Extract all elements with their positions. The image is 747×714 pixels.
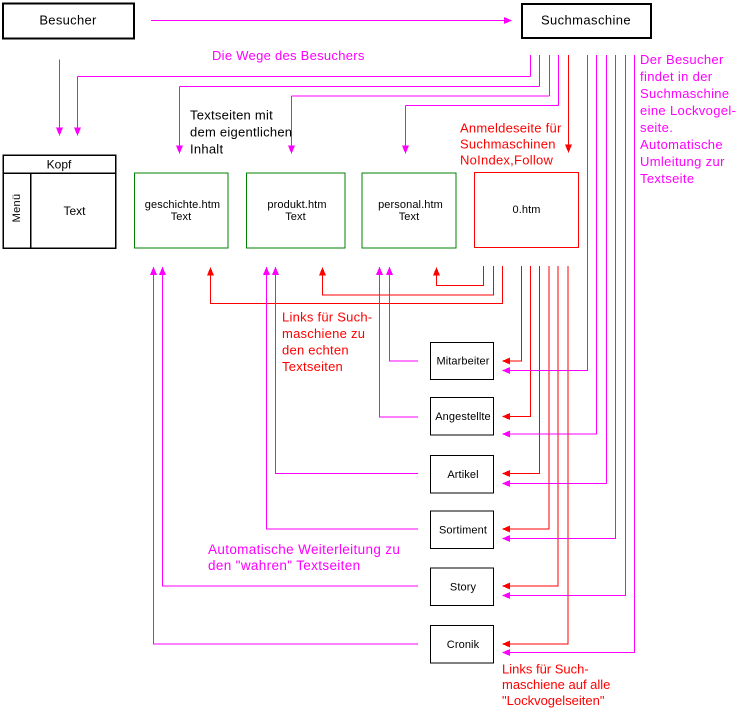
svg-text:findet in der: findet in der <box>640 69 713 84</box>
svg-text:Story: Story <box>450 582 477 594</box>
svg-text:Textseiten: Textseiten <box>282 359 343 374</box>
svg-text:Text: Text <box>63 204 86 218</box>
svg-text:Kopf: Kopf <box>47 158 72 172</box>
svg-text:Links für Such-: Links für Such- <box>502 662 589 677</box>
svg-text:NoIndex,Follow: NoIndex,Follow <box>460 153 553 168</box>
svg-text:Artikel: Artikel <box>447 469 478 481</box>
svg-text:seite.: seite. <box>640 120 673 135</box>
svg-text:Textseite: Textseite <box>640 171 694 186</box>
svg-text:Angestellte: Angestellte <box>435 411 491 423</box>
svg-text:Text: Text <box>399 211 420 223</box>
svg-text:Inhalt: Inhalt <box>190 142 223 157</box>
svg-text:"Lockvogelseiten": "Lockvogelseiten" <box>502 693 605 708</box>
svg-text:Die Wege des Besuchers: Die Wege des Besuchers <box>212 48 365 63</box>
svg-text:eine Lockvogel-: eine Lockvogel- <box>640 103 736 118</box>
svg-text:maschiene auf alle: maschiene auf alle <box>502 677 610 692</box>
svg-text:Menü: Menü <box>11 194 23 223</box>
svg-text:Links für Such-: Links für Such- <box>282 310 372 325</box>
svg-text:den echten: den echten <box>282 343 349 358</box>
svg-text:personal.htm: personal.htm <box>378 199 443 211</box>
svg-text:Textseiten mit: Textseiten mit <box>190 108 273 123</box>
svg-text:0.htm: 0.htm <box>512 204 540 216</box>
svg-text:Suchmaschine: Suchmaschine <box>541 13 631 28</box>
svg-text:Text: Text <box>285 211 306 223</box>
svg-text:Umleitung zur: Umleitung zur <box>640 154 725 169</box>
svg-text:Suchmaschine: Suchmaschine <box>640 86 729 101</box>
svg-text:geschichte.htm: geschichte.htm <box>145 199 220 211</box>
svg-text:dem eigentlichen: dem eigentlichen <box>190 125 292 140</box>
svg-text:Automatische: Automatische <box>640 137 723 152</box>
svg-text:Mitarbeiter: Mitarbeiter <box>436 356 489 368</box>
svg-text:Besucher: Besucher <box>39 13 97 28</box>
svg-text:Text: Text <box>171 211 192 223</box>
svg-text:produkt.htm: produkt.htm <box>267 199 326 211</box>
svg-text:Automatische Weiterleitung zu: Automatische Weiterleitung zu <box>208 542 400 557</box>
svg-text:den "wahren" Textseiten: den "wahren" Textseiten <box>208 558 360 573</box>
svg-text:Sortiment: Sortiment <box>439 525 487 537</box>
svg-text:Cronik: Cronik <box>447 639 480 651</box>
svg-text:maschiene zu: maschiene zu <box>282 326 365 341</box>
svg-text:Der Besucher: Der Besucher <box>640 52 724 67</box>
svg-text:Suchmaschinen: Suchmaschinen <box>460 137 556 152</box>
svg-text:Anmeldeseite für: Anmeldeseite für <box>460 121 562 136</box>
